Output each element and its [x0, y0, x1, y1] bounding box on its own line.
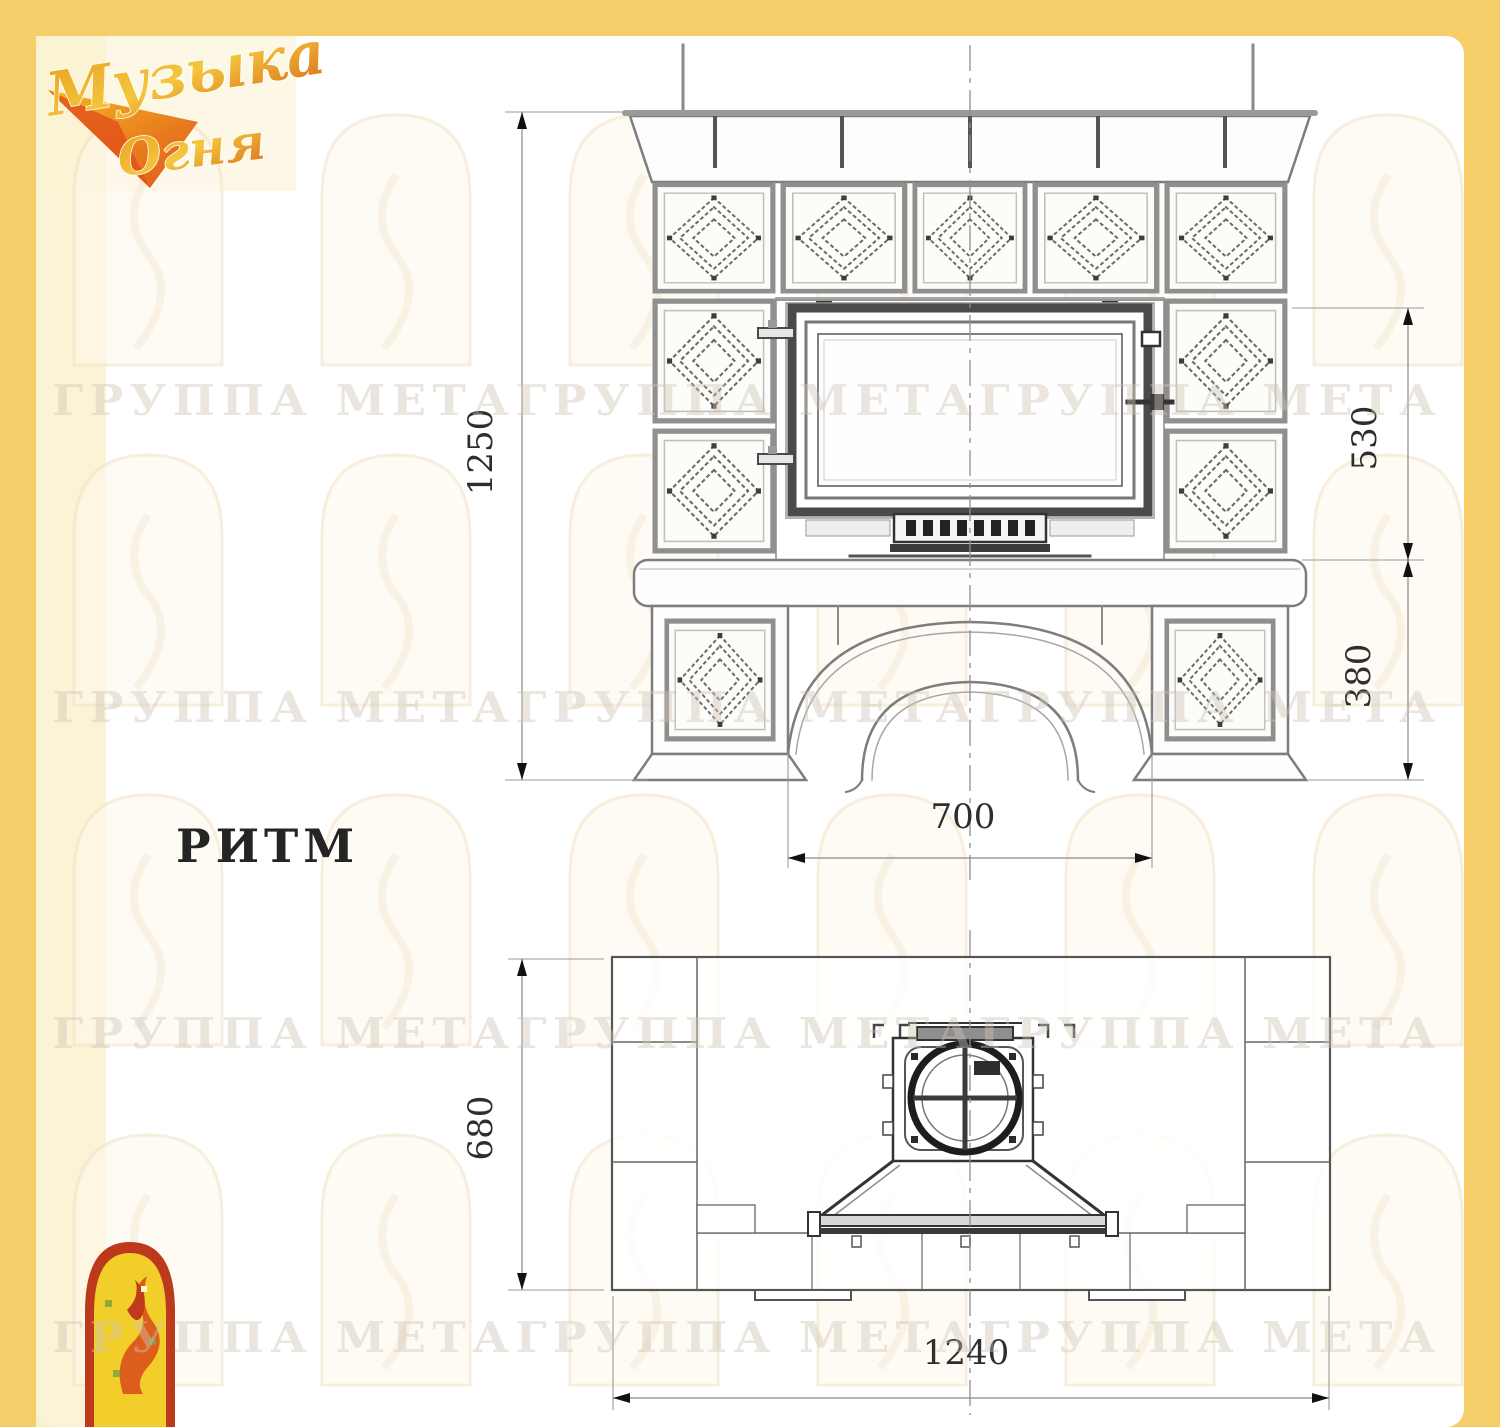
corner-notch-right: [1187, 1205, 1245, 1233]
watermark-text-row: ГРУППА МЕТАГРУППА МЕТАГРУППА МЕТА: [52, 683, 1442, 732]
damper-bracket: [974, 1061, 1000, 1075]
foot-left: [755, 1290, 851, 1300]
model-label: РИТМ: [176, 819, 359, 873]
firebox: [758, 298, 1172, 560]
corner-notch-left: [697, 1205, 755, 1233]
watermark-text-row: ГРУППА МЕТАГРУППА МЕТАГРУППА МЕТА: [52, 1313, 1442, 1362]
drawing-sheet: 1250 530 380 700 680 1240: [0, 0, 1500, 1427]
insert-front-bar: [818, 1215, 1108, 1226]
dim-label-700: 700: [931, 797, 996, 837]
plinth-right: [1134, 754, 1306, 780]
watermark-text-row: ГРУППА МЕТАГРУППА МЕТАГРУППА МЕТА: [52, 1009, 1442, 1058]
dim-label-680: 680: [461, 1096, 501, 1161]
plinth-left: [634, 754, 806, 780]
watermark-text-row: ГРУППА МЕТАГРУППА МЕТАГРУППА МЕТА: [52, 376, 1442, 425]
fireplace-technical-drawing: 1250 530 380 700 680 1240: [0, 0, 1500, 1427]
foot-right: [1089, 1290, 1185, 1300]
